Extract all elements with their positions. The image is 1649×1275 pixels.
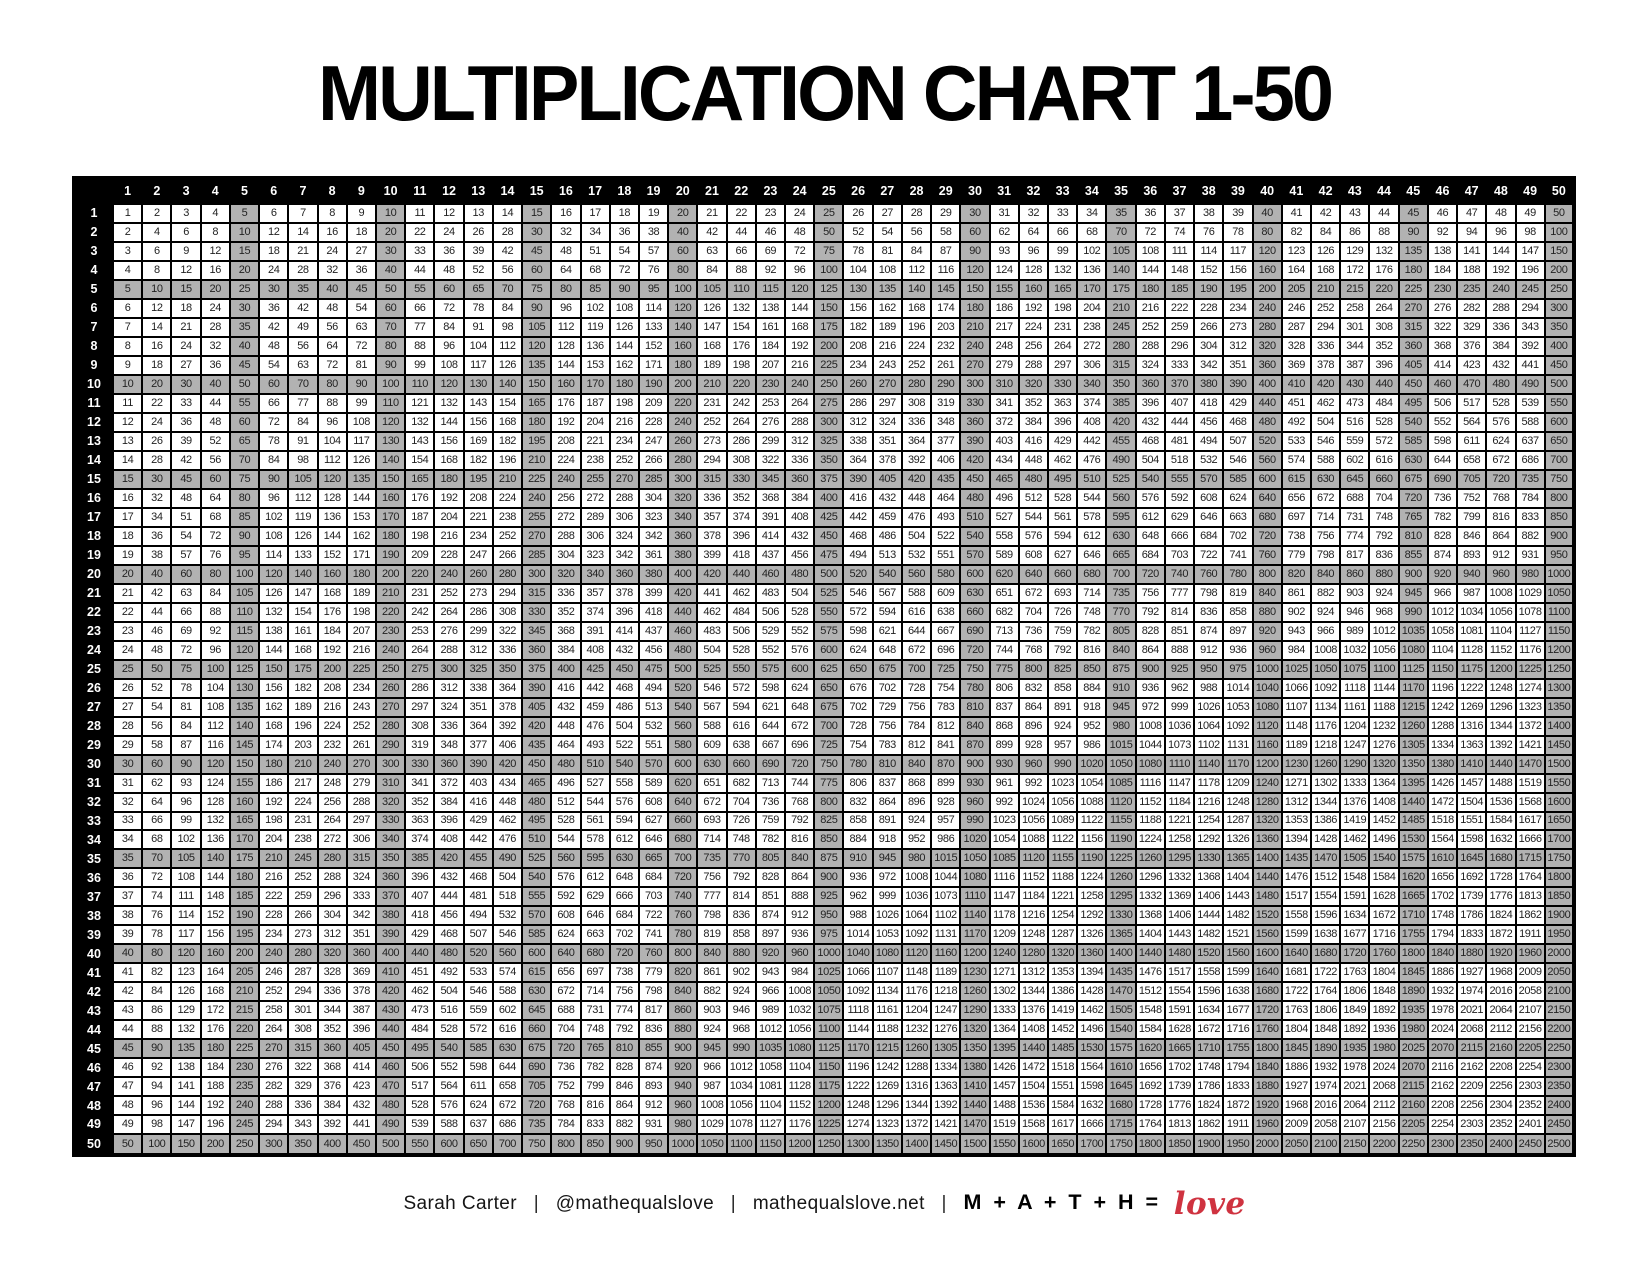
product-cell-46x47: 2162	[1457, 1058, 1486, 1077]
product-cell-8x40: 320	[1253, 337, 1282, 356]
product-cell-50x21: 1050	[697, 1134, 726, 1155]
product-cell-40x43: 1720	[1340, 944, 1369, 963]
product-cell-6x44: 264	[1369, 299, 1398, 318]
product-cell-18x45: 810	[1399, 527, 1428, 546]
product-cell-15x17: 255	[581, 470, 610, 489]
product-cell-7x6: 42	[259, 318, 288, 337]
product-cell-36x15: 540	[522, 868, 551, 887]
product-cell-26x37: 962	[1165, 679, 1194, 698]
product-cell-20x31: 620	[990, 565, 1019, 584]
product-cell-27x12: 324	[434, 698, 463, 717]
product-cell-27x25: 675	[814, 698, 843, 717]
product-cell-14x35: 490	[1106, 451, 1135, 470]
product-cell-22x5: 110	[230, 603, 259, 622]
product-cell-8x8: 64	[318, 337, 347, 356]
product-cell-2x22: 44	[727, 223, 756, 242]
product-cell-17x48: 816	[1486, 508, 1515, 527]
product-cell-50x40: 2000	[1253, 1134, 1282, 1155]
product-cell-46x3: 138	[171, 1058, 200, 1077]
product-cell-34x1: 34	[113, 830, 142, 849]
product-cell-31x30: 930	[960, 774, 989, 793]
product-cell-19x1: 19	[113, 546, 142, 565]
product-cell-48x33: 1584	[1048, 1096, 1077, 1115]
product-cell-3x5: 15	[230, 242, 259, 261]
product-cell-16x35: 560	[1106, 489, 1135, 508]
product-cell-47x16: 752	[551, 1077, 580, 1096]
product-cell-20x29: 580	[931, 565, 960, 584]
product-cell-16x46: 736	[1428, 489, 1457, 508]
product-cell-25x35: 875	[1106, 660, 1135, 679]
product-cell-18x22: 396	[727, 527, 756, 546]
product-cell-45x37: 1665	[1165, 1039, 1194, 1058]
product-cell-20x44: 880	[1369, 565, 1398, 584]
product-cell-23x22: 506	[727, 622, 756, 641]
product-cell-37x37: 1369	[1165, 887, 1194, 906]
product-cell-21x21: 441	[697, 584, 726, 603]
product-cell-3x27: 81	[873, 242, 902, 261]
product-cell-6x32: 192	[1019, 299, 1048, 318]
product-cell-5x34: 170	[1077, 280, 1106, 299]
product-cell-45x24: 1080	[785, 1039, 814, 1058]
product-cell-16x14: 224	[493, 489, 522, 508]
table-row-45: 4545901351802252703153604054504955405856…	[74, 1039, 1574, 1058]
product-cell-25x33: 825	[1048, 660, 1077, 679]
product-cell-23x36: 828	[1136, 622, 1165, 641]
product-cell-50x19: 950	[639, 1134, 668, 1155]
product-cell-47x38: 1786	[1194, 1077, 1223, 1096]
product-cell-15x40: 600	[1253, 470, 1282, 489]
product-cell-44x5: 220	[230, 1020, 259, 1039]
product-cell-20x13: 260	[464, 565, 493, 584]
product-cell-34x9: 306	[347, 830, 376, 849]
product-cell-48x38: 1824	[1194, 1096, 1223, 1115]
product-cell-2x7: 14	[288, 223, 317, 242]
product-cell-46x14: 644	[493, 1058, 522, 1077]
product-cell-12x15: 180	[522, 413, 551, 432]
product-cell-15x46: 690	[1428, 470, 1457, 489]
product-cell-40x5: 200	[230, 944, 259, 963]
product-cell-48x26: 1248	[843, 1096, 872, 1115]
product-cell-2x24: 48	[785, 223, 814, 242]
product-cell-2x35: 70	[1106, 223, 1135, 242]
product-cell-1x27: 27	[873, 204, 902, 223]
row-header-10: 10	[74, 375, 113, 394]
product-cell-30x34: 1020	[1077, 755, 1106, 774]
product-cell-44x23: 1012	[756, 1020, 785, 1039]
product-cell-21x9: 189	[347, 584, 376, 603]
product-cell-24x16: 384	[551, 641, 580, 660]
product-cell-21x31: 651	[990, 584, 1019, 603]
product-cell-34x42: 1428	[1311, 830, 1340, 849]
product-cell-5x44: 220	[1369, 280, 1398, 299]
product-cell-8x49: 392	[1516, 337, 1545, 356]
product-cell-49x48: 2352	[1486, 1115, 1515, 1134]
product-cell-27x5: 135	[230, 698, 259, 717]
product-cell-16x12: 192	[434, 489, 463, 508]
product-cell-17x23: 391	[756, 508, 785, 527]
product-cell-25x26: 650	[843, 660, 872, 679]
product-cell-34x23: 782	[756, 830, 785, 849]
product-cell-36x19: 684	[639, 868, 668, 887]
product-cell-17x31: 527	[990, 508, 1019, 527]
product-cell-35x46: 1610	[1428, 849, 1457, 868]
product-cell-37x49: 1813	[1516, 887, 1545, 906]
product-cell-16x48: 768	[1486, 489, 1515, 508]
product-cell-44x13: 572	[464, 1020, 493, 1039]
product-cell-43x10: 430	[376, 1001, 405, 1020]
product-cell-45x38: 1710	[1194, 1039, 1223, 1058]
product-cell-25x24: 600	[785, 660, 814, 679]
product-cell-7x14: 98	[493, 318, 522, 337]
product-cell-12x38: 456	[1194, 413, 1223, 432]
product-cell-6x2: 12	[142, 299, 171, 318]
product-cell-40x10: 400	[376, 944, 405, 963]
product-cell-4x47: 188	[1457, 261, 1486, 280]
product-cell-46x20: 920	[668, 1058, 697, 1077]
product-cell-13x10: 130	[376, 432, 405, 451]
product-cell-21x47: 987	[1457, 584, 1486, 603]
row-header-22: 22	[74, 603, 113, 622]
product-cell-46x22: 1012	[727, 1058, 756, 1077]
product-cell-35x44: 1540	[1369, 849, 1398, 868]
product-cell-44x29: 1276	[931, 1020, 960, 1039]
product-cell-16x7: 112	[288, 489, 317, 508]
product-cell-49x13: 637	[464, 1115, 493, 1134]
product-cell-31x28: 868	[902, 774, 931, 793]
product-cell-4x20: 80	[668, 261, 697, 280]
product-cell-13x44: 572	[1369, 432, 1398, 451]
product-cell-12x4: 48	[201, 413, 230, 432]
product-cell-28x47: 1316	[1457, 717, 1486, 736]
product-cell-36x44: 1584	[1369, 868, 1398, 887]
product-cell-10x29: 290	[931, 375, 960, 394]
product-cell-38x35: 1330	[1106, 906, 1135, 925]
table-row-34: 3434681021361702042382723063403744084424…	[74, 830, 1574, 849]
product-cell-27x30: 810	[960, 698, 989, 717]
product-cell-20x15: 300	[522, 565, 551, 584]
product-cell-20x6: 120	[259, 565, 288, 584]
product-cell-21x23: 483	[756, 584, 785, 603]
product-cell-24x48: 1152	[1486, 641, 1515, 660]
product-cell-19x24: 456	[785, 546, 814, 565]
product-cell-38x24: 912	[785, 906, 814, 925]
product-cell-21x28: 588	[902, 584, 931, 603]
product-cell-10x20: 200	[668, 375, 697, 394]
product-cell-4x21: 84	[697, 261, 726, 280]
product-cell-44x33: 1452	[1048, 1020, 1077, 1039]
product-cell-45x39: 1755	[1223, 1039, 1252, 1058]
product-cell-7x13: 91	[464, 318, 493, 337]
product-cell-17x19: 323	[639, 508, 668, 527]
product-cell-33x7: 231	[288, 812, 317, 831]
product-cell-50x15: 750	[522, 1134, 551, 1155]
product-cell-20x22: 440	[727, 565, 756, 584]
product-cell-13x12: 156	[434, 432, 463, 451]
product-cell-44x15: 660	[522, 1020, 551, 1039]
product-cell-7x2: 14	[142, 318, 171, 337]
product-cell-14x45: 630	[1399, 451, 1428, 470]
product-cell-26x16: 416	[551, 679, 580, 698]
product-cell-40x22: 880	[727, 944, 756, 963]
product-cell-29x29: 841	[931, 736, 960, 755]
product-cell-44x34: 1496	[1077, 1020, 1106, 1039]
row-header-1: 1	[74, 204, 113, 223]
product-cell-43x48: 2064	[1486, 1001, 1515, 1020]
product-cell-27x33: 891	[1048, 698, 1077, 717]
product-cell-45x15: 675	[522, 1039, 551, 1058]
product-cell-41x34: 1394	[1077, 963, 1106, 982]
product-cell-9x5: 45	[230, 356, 259, 375]
product-cell-15x36: 540	[1136, 470, 1165, 489]
product-cell-19x41: 779	[1282, 546, 1311, 565]
product-cell-19x20: 380	[668, 546, 697, 565]
product-cell-11x21: 231	[697, 394, 726, 413]
product-cell-22x32: 704	[1019, 603, 1048, 622]
product-cell-7x7: 49	[288, 318, 317, 337]
product-cell-36x30: 1080	[960, 868, 989, 887]
product-cell-20x5: 100	[230, 565, 259, 584]
product-cell-3x30: 90	[960, 242, 989, 261]
product-cell-13x36: 468	[1136, 432, 1165, 451]
product-cell-37x15: 555	[522, 887, 551, 906]
product-cell-10x34: 340	[1077, 375, 1106, 394]
product-cell-30x28: 840	[902, 755, 931, 774]
product-cell-38x50: 1900	[1545, 906, 1574, 925]
product-cell-4x19: 76	[639, 261, 668, 280]
row-header-34: 34	[74, 830, 113, 849]
product-cell-1x18: 18	[610, 204, 639, 223]
product-cell-7x18: 126	[610, 318, 639, 337]
product-cell-12x31: 372	[990, 413, 1019, 432]
product-cell-37x50: 1850	[1545, 887, 1574, 906]
product-cell-23x50: 1150	[1545, 622, 1574, 641]
product-cell-3x26: 78	[843, 242, 872, 261]
product-cell-8x22: 176	[727, 337, 756, 356]
product-cell-13x32: 416	[1019, 432, 1048, 451]
product-cell-45x10: 450	[376, 1039, 405, 1058]
product-cell-12x36: 432	[1136, 413, 1165, 432]
product-cell-19x46: 874	[1428, 546, 1457, 565]
product-cell-47x22: 1034	[727, 1077, 756, 1096]
product-cell-46x25: 1150	[814, 1058, 843, 1077]
product-cell-29x9: 261	[347, 736, 376, 755]
product-cell-14x18: 252	[610, 451, 639, 470]
product-cell-13x9: 117	[347, 432, 376, 451]
product-cell-43x21: 903	[697, 1001, 726, 1020]
product-cell-47x3: 141	[171, 1077, 200, 1096]
product-cell-15x2: 30	[142, 470, 171, 489]
product-cell-12x10: 120	[376, 413, 405, 432]
product-cell-40x49: 1960	[1516, 944, 1545, 963]
product-cell-47x13: 611	[464, 1077, 493, 1096]
product-cell-28x25: 700	[814, 717, 843, 736]
product-cell-30x29: 870	[931, 755, 960, 774]
product-cell-25x40: 1000	[1253, 660, 1282, 679]
product-cell-48x12: 576	[434, 1096, 463, 1115]
product-cell-44x27: 1188	[873, 1020, 902, 1039]
product-cell-16x22: 352	[727, 489, 756, 508]
product-cell-19x19: 361	[639, 546, 668, 565]
product-cell-16x5: 80	[230, 489, 259, 508]
product-cell-30x3: 90	[171, 755, 200, 774]
product-cell-14x19: 266	[639, 451, 668, 470]
product-cell-10x19: 190	[639, 375, 668, 394]
product-cell-29x18: 522	[610, 736, 639, 755]
product-cell-38x36: 1368	[1136, 906, 1165, 925]
product-cell-45x5: 225	[230, 1039, 259, 1058]
product-cell-40x35: 1400	[1106, 944, 1135, 963]
product-cell-25x27: 675	[873, 660, 902, 679]
product-cell-16x24: 384	[785, 489, 814, 508]
product-cell-17x4: 68	[201, 508, 230, 527]
product-cell-24x10: 240	[376, 641, 405, 660]
product-cell-10x43: 430	[1340, 375, 1369, 394]
product-cell-13x19: 247	[639, 432, 668, 451]
product-cell-10x5: 50	[230, 375, 259, 394]
product-cell-23x37: 851	[1165, 622, 1194, 641]
product-cell-6x48: 288	[1486, 299, 1515, 318]
product-cell-50x4: 200	[201, 1134, 230, 1155]
product-cell-6x29: 174	[931, 299, 960, 318]
product-cell-38x43: 1634	[1340, 906, 1369, 925]
product-cell-44x42: 1848	[1311, 1020, 1340, 1039]
product-cell-40x20: 800	[668, 944, 697, 963]
product-cell-30x36: 1080	[1136, 755, 1165, 774]
product-cell-23x5: 115	[230, 622, 259, 641]
product-cell-29x50: 1450	[1545, 736, 1574, 755]
product-cell-18x40: 720	[1253, 527, 1282, 546]
product-cell-44x6: 264	[259, 1020, 288, 1039]
product-cell-46x7: 322	[288, 1058, 317, 1077]
product-cell-16x30: 480	[960, 489, 989, 508]
product-cell-16x42: 672	[1311, 489, 1340, 508]
product-cell-16x31: 496	[990, 489, 1019, 508]
product-cell-14x22: 308	[727, 451, 756, 470]
product-cell-33x47: 1551	[1457, 812, 1486, 831]
product-cell-29x30: 870	[960, 736, 989, 755]
product-cell-19x5: 95	[230, 546, 259, 565]
product-cell-10x40: 400	[1253, 375, 1282, 394]
footer-separator-1: |	[534, 1193, 539, 1214]
product-cell-26x2: 52	[142, 679, 171, 698]
product-cell-45x4: 180	[201, 1039, 230, 1058]
product-cell-36x26: 936	[843, 868, 872, 887]
col-header-29: 29	[931, 178, 960, 204]
product-cell-13x13: 169	[464, 432, 493, 451]
col-header-3: 3	[171, 178, 200, 204]
product-cell-13x28: 364	[902, 432, 931, 451]
product-cell-18x37: 666	[1165, 527, 1194, 546]
product-cell-2x11: 22	[405, 223, 434, 242]
product-cell-46x49: 2254	[1516, 1058, 1545, 1077]
product-cell-47x32: 1504	[1019, 1077, 1048, 1096]
col-header-4: 4	[201, 178, 230, 204]
product-cell-48x49: 2352	[1516, 1096, 1545, 1115]
product-cell-29x28: 812	[902, 736, 931, 755]
row-header-31: 31	[74, 774, 113, 793]
product-cell-37x2: 74	[142, 887, 171, 906]
product-cell-16x49: 784	[1516, 489, 1545, 508]
product-cell-5x37: 185	[1165, 280, 1194, 299]
product-cell-21x49: 1029	[1516, 584, 1545, 603]
product-cell-22x6: 132	[259, 603, 288, 622]
product-cell-37x5: 185	[230, 887, 259, 906]
product-cell-12x14: 168	[493, 413, 522, 432]
product-cell-32x41: 1312	[1282, 793, 1311, 812]
product-cell-45x25: 1125	[814, 1039, 843, 1058]
product-cell-34x49: 1666	[1516, 830, 1545, 849]
product-cell-28x42: 1176	[1311, 717, 1340, 736]
product-cell-4x16: 64	[551, 261, 580, 280]
product-cell-48x27: 1296	[873, 1096, 902, 1115]
product-cell-44x40: 1760	[1253, 1020, 1282, 1039]
product-cell-32x17: 544	[581, 793, 610, 812]
product-cell-25x36: 900	[1136, 660, 1165, 679]
product-cell-31x25: 775	[814, 774, 843, 793]
product-cell-8x25: 200	[814, 337, 843, 356]
product-cell-8x31: 248	[990, 337, 1019, 356]
product-cell-10x46: 460	[1428, 375, 1457, 394]
product-cell-18x5: 90	[230, 527, 259, 546]
product-cell-22x17: 374	[581, 603, 610, 622]
product-cell-40x11: 440	[405, 944, 434, 963]
product-cell-17x9: 153	[347, 508, 376, 527]
product-cell-22x7: 154	[288, 603, 317, 622]
product-cell-20x46: 920	[1428, 565, 1457, 584]
product-cell-26x45: 1170	[1399, 679, 1428, 698]
product-cell-17x10: 170	[376, 508, 405, 527]
product-cell-45x26: 1170	[843, 1039, 872, 1058]
product-cell-21x34: 714	[1077, 584, 1106, 603]
product-cell-4x24: 96	[785, 261, 814, 280]
product-cell-30x9: 270	[347, 755, 376, 774]
product-cell-30x23: 690	[756, 755, 785, 774]
product-cell-7x23: 161	[756, 318, 785, 337]
product-cell-41x37: 1517	[1165, 963, 1194, 982]
product-cell-34x30: 1020	[960, 830, 989, 849]
product-cell-1x17: 17	[581, 204, 610, 223]
product-cell-10x23: 230	[756, 375, 785, 394]
product-cell-46x38: 1748	[1194, 1058, 1223, 1077]
product-cell-18x44: 792	[1369, 527, 1398, 546]
product-cell-36x45: 1620	[1399, 868, 1428, 887]
product-cell-11x43: 473	[1340, 394, 1369, 413]
product-cell-24x46: 1104	[1428, 641, 1457, 660]
product-cell-49x7: 343	[288, 1115, 317, 1134]
product-cell-5x42: 210	[1311, 280, 1340, 299]
product-cell-11x38: 418	[1194, 394, 1223, 413]
product-cell-21x44: 924	[1369, 584, 1398, 603]
product-cell-39x49: 1911	[1516, 925, 1545, 944]
product-cell-18x49: 882	[1516, 527, 1545, 546]
product-cell-44x44: 1936	[1369, 1020, 1398, 1039]
product-cell-14x38: 532	[1194, 451, 1223, 470]
product-cell-48x11: 528	[405, 1096, 434, 1115]
col-header-42: 42	[1311, 178, 1340, 204]
product-cell-42x1: 42	[113, 982, 142, 1001]
product-cell-25x32: 800	[1019, 660, 1048, 679]
product-cell-11x1: 11	[113, 394, 142, 413]
product-cell-5x40: 200	[1253, 280, 1282, 299]
product-cell-41x33: 1353	[1048, 963, 1077, 982]
product-cell-35x43: 1505	[1340, 849, 1369, 868]
product-cell-20x4: 80	[201, 565, 230, 584]
product-cell-20x30: 600	[960, 565, 989, 584]
product-cell-43x49: 2107	[1516, 1001, 1545, 1020]
product-cell-25x20: 500	[668, 660, 697, 679]
product-cell-12x20: 240	[668, 413, 697, 432]
product-cell-5x23: 115	[756, 280, 785, 299]
